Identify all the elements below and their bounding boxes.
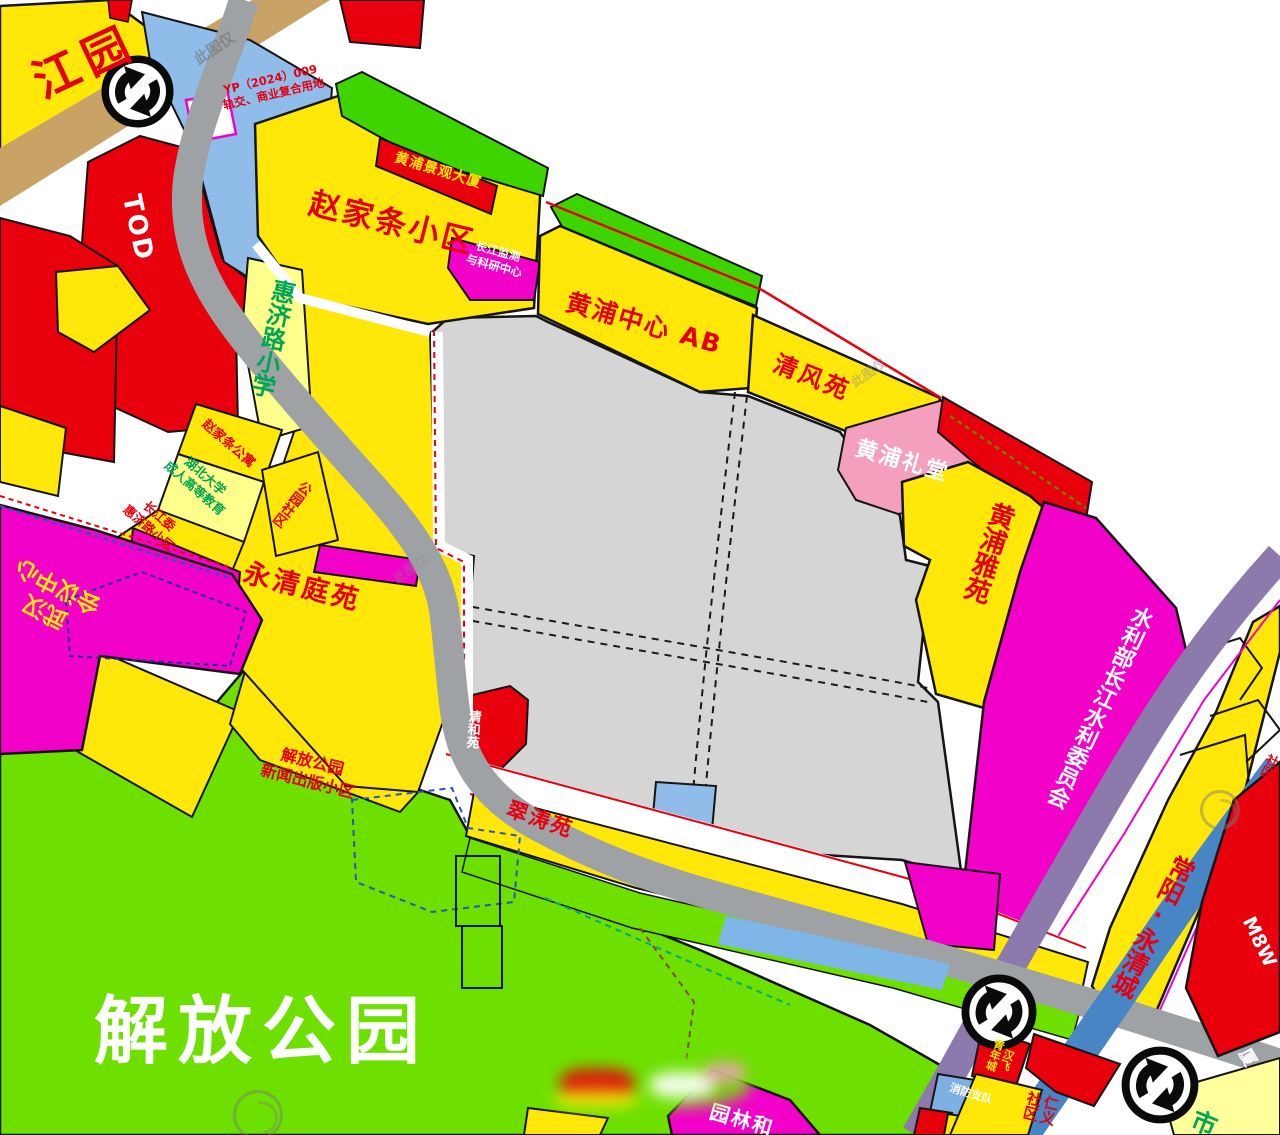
map-canvas	[0, 0, 1280, 1135]
planning-map: 江园 YP（2024）009 轨交、商业复合用地 TOD 赵家条小区 黄浦景观大…	[0, 0, 1280, 1135]
metro-station-icon	[105, 59, 170, 124]
watermark-logo-icon	[1200, 790, 1240, 830]
metro-station-icon	[1126, 1051, 1195, 1120]
parcel-red-top	[340, 0, 424, 48]
watermark-logo-icon	[233, 1090, 283, 1135]
metro-station-icon	[965, 978, 1032, 1045]
parcel-red-top-sliver-left	[108, 0, 132, 22]
